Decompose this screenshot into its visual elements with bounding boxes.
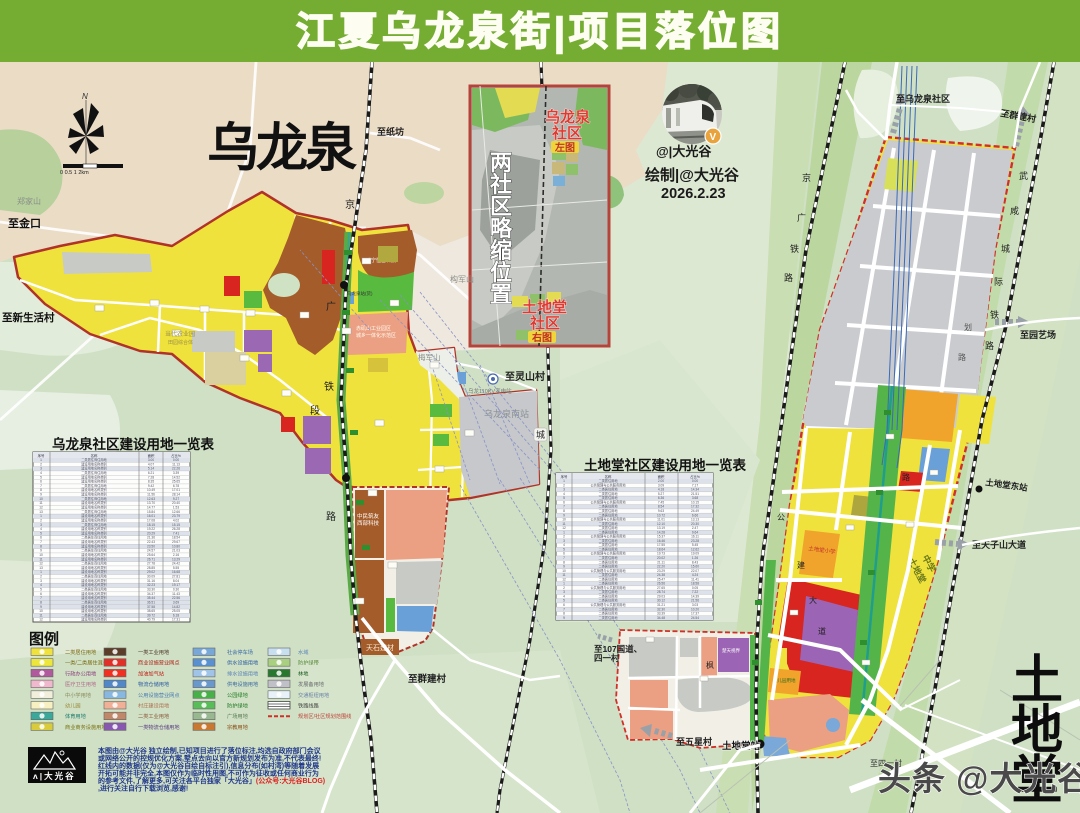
svg-text:建设用地名称类别: 建设用地名称类别 bbox=[81, 543, 107, 548]
svg-text:建设用地名称类别: 建设用地名称类别 bbox=[81, 604, 107, 609]
svg-text:京: 京 bbox=[345, 198, 355, 211]
svg-text:二类居住用地: 二类居住用地 bbox=[598, 504, 618, 509]
svg-text:头条 @大光谷: 头条 @大光谷 bbox=[878, 760, 1080, 797]
svg-text:二类居住用地: 二类居住用地 bbox=[598, 538, 618, 543]
svg-text:建设用地名称类别: 建设用地名称类别 bbox=[81, 539, 107, 544]
svg-text:防护绿地: 防护绿地 bbox=[227, 702, 248, 710]
svg-text:二类居住商住用地: 二类居住商住用地 bbox=[81, 535, 107, 540]
svg-text:公共管理与公共服务用地: 公共管理与公共服务用地 bbox=[590, 585, 626, 590]
svg-text:8: 8 bbox=[40, 544, 42, 548]
svg-text:绘制|@大光谷: 绘制|@大光谷 bbox=[645, 166, 740, 184]
svg-text:@|大光谷: @|大光谷 bbox=[656, 144, 712, 159]
svg-text:公共管理与公共服务用地: 公共管理与公共服务用地 bbox=[590, 517, 626, 522]
svg-text:公园绿地: 公园绿地 bbox=[227, 691, 248, 699]
svg-text:城: 城 bbox=[536, 430, 545, 440]
svg-text:公共管理与公共服务用地: 公共管理与公共服务用地 bbox=[590, 551, 626, 556]
svg-text:4.02: 4.02 bbox=[173, 518, 179, 522]
svg-text:路: 路 bbox=[958, 352, 966, 362]
svg-text:城乡一体化示范区: 城乡一体化示范区 bbox=[356, 332, 396, 339]
svg-text:建设用地名称类别: 建设用地名称类别 bbox=[81, 556, 107, 561]
svg-text:24.54: 24.54 bbox=[691, 616, 699, 620]
svg-text:公共管理与公共服务用地: 公共管理与公共服务用地 bbox=[590, 534, 626, 539]
svg-text:林地: 林地 bbox=[298, 669, 308, 677]
svg-text:公共管理与公共服务用地: 公共管理与公共服务用地 bbox=[590, 568, 626, 573]
svg-text:排水设施用地: 排水设施用地 bbox=[227, 669, 258, 677]
svg-text:二类居住商住用地: 二类居住商住用地 bbox=[81, 522, 107, 527]
svg-text:水域: 水域 bbox=[298, 648, 308, 656]
svg-text:一类物流仓储用地: 一类物流仓储用地 bbox=[138, 723, 180, 731]
svg-text:咸: 咸 bbox=[1010, 205, 1019, 216]
svg-text:2: 2 bbox=[40, 462, 42, 466]
svg-text:二类居住用地: 二类居住用地 bbox=[598, 598, 618, 603]
svg-text:建设用地名称类别: 建设用地名称类别 bbox=[81, 617, 107, 622]
svg-text:本图由@大光谷 独立绘制,已知项目进行了落位标注,均选自政府: 本图由@大光谷 独立绘制,已知项目进行了落位标注,均选自政府部门会议 bbox=[97, 746, 322, 755]
svg-text:路: 路 bbox=[985, 340, 994, 351]
svg-text:交通枢纽用地: 交通枢纽用地 bbox=[298, 691, 329, 699]
svg-text:乌龙泉: 乌龙泉 bbox=[207, 120, 357, 178]
svg-text:序号: 序号 bbox=[38, 453, 45, 458]
svg-text:至灵山村: 至灵山村 bbox=[505, 370, 545, 383]
svg-text:中小学用地: 中小学用地 bbox=[65, 691, 91, 699]
svg-text:二类居住用地: 二类居住用地 bbox=[598, 564, 618, 569]
svg-text:体育用地: 体育用地 bbox=[65, 712, 86, 720]
svg-text:二类居住商住用地: 二类居住商住用地 bbox=[81, 483, 107, 488]
svg-text:建设用地名称类别: 建设用地名称类别 bbox=[81, 565, 107, 570]
svg-text:二类居住商住用地: 二类居住商住用地 bbox=[81, 612, 107, 617]
svg-text:二类居住用地: 二类居住用地 bbox=[598, 491, 618, 496]
svg-text:供电设施用地: 供电设施用地 bbox=[227, 680, 258, 688]
svg-text:建设用地名称类别: 建设用地名称类别 bbox=[81, 530, 107, 535]
svg-text:建设用地名称类别: 建设用地名称类别 bbox=[81, 500, 107, 505]
svg-text:建设用地名称类别: 建设用地名称类别 bbox=[81, 608, 107, 613]
svg-text:社区: 社区 bbox=[529, 314, 560, 332]
svg-text:二类居住商住用地: 二类居住商住用地 bbox=[81, 574, 107, 579]
svg-text:3.69: 3.69 bbox=[173, 600, 179, 604]
svg-text:一类工业用地: 一类工业用地 bbox=[138, 648, 169, 656]
svg-text:建设用地名称类别: 建设用地名称类别 bbox=[81, 526, 107, 531]
svg-text:二类居住用地: 二类居住用地 bbox=[598, 508, 618, 513]
svg-text:建设用地名称类别: 建设用地名称类别 bbox=[81, 517, 107, 522]
svg-text:路: 路 bbox=[326, 510, 336, 523]
svg-text:建设用地名称类别: 建设用地名称类别 bbox=[81, 487, 107, 492]
svg-text:防护绿带: 防护绿带 bbox=[298, 659, 319, 667]
svg-text:商业商务设施用地: 商业商务设施用地 bbox=[65, 723, 107, 731]
svg-text:名称: 名称 bbox=[91, 453, 98, 458]
svg-text:或网络公开的控规优化方案,墅点去向以官方新规划发布为准,不代: 或网络公开的控规优化方案,墅点去向以官方新规划发布为准,不代表最终! bbox=[98, 754, 321, 763]
svg-text:28.14: 28.14 bbox=[172, 493, 180, 497]
svg-text:城: 城 bbox=[1001, 244, 1010, 254]
svg-text:大: 大 bbox=[809, 595, 817, 605]
svg-text:二类工业用地: 二类工业用地 bbox=[138, 712, 169, 720]
svg-text:商业设施营业网点: 商业设施营业网点 bbox=[138, 659, 180, 667]
svg-text:建设用地名称类别: 建设用地名称类别 bbox=[81, 578, 107, 583]
svg-text:土地堂社区建设用地一览表: 土地堂社区建设用地一览表 bbox=[584, 457, 746, 473]
svg-text:广: 广 bbox=[797, 212, 806, 223]
svg-text:12: 12 bbox=[39, 618, 43, 622]
svg-text:V: V bbox=[710, 132, 717, 143]
svg-text:乌龙110KV变电站: 乌龙110KV变电站 bbox=[468, 387, 512, 395]
svg-text:建设用地名称类别: 建设用地名称类别 bbox=[81, 582, 107, 587]
svg-text:序号: 序号 bbox=[561, 474, 568, 479]
svg-text:至园艺场: 至园艺场 bbox=[1020, 329, 1056, 340]
svg-text:图例: 图例 bbox=[29, 630, 59, 648]
svg-text:二类居住商住用地: 二类居住商住用地 bbox=[81, 561, 107, 566]
svg-text:广场用地: 广场用地 bbox=[227, 712, 248, 720]
svg-text:9: 9 bbox=[40, 493, 42, 497]
svg-text:17.31: 17.31 bbox=[172, 618, 180, 622]
svg-text:至金口: 至金口 bbox=[8, 216, 41, 230]
svg-text:枫: 枫 bbox=[706, 660, 714, 670]
svg-text:建设用地名称类别: 建设用地名称类别 bbox=[81, 474, 107, 479]
svg-text:占比%: 占比% bbox=[171, 453, 181, 458]
svg-text:2: 2 bbox=[40, 518, 42, 522]
svg-text:36.51: 36.51 bbox=[147, 600, 155, 604]
svg-text:右图: 右图 bbox=[531, 331, 552, 344]
svg-text:名称: 名称 bbox=[605, 474, 612, 479]
svg-text:社区: 社区 bbox=[551, 124, 582, 142]
svg-text:置: 置 bbox=[490, 282, 512, 307]
svg-text:构军山: 构军山 bbox=[450, 274, 474, 284]
svg-text:,进行关注自行下载浏览,感谢!: ,进行关注自行下载浏览,感谢! bbox=[98, 784, 188, 793]
svg-text:乌龙泉站(货): 乌龙泉站(货) bbox=[347, 290, 373, 297]
svg-text:铁路线路: 铁路线路 bbox=[298, 702, 320, 710]
svg-text:至五星村: 至五星村 bbox=[676, 736, 712, 747]
svg-text:际: 际 bbox=[994, 277, 1003, 287]
svg-text:0 0.5 1 2km: 0 0.5 1 2km bbox=[60, 170, 89, 176]
svg-text:道: 道 bbox=[818, 626, 826, 636]
svg-text:铁: 铁 bbox=[990, 309, 999, 320]
svg-text:面积: 面积 bbox=[148, 453, 155, 458]
svg-text:开拓可能并非完全,本图仅作为临时性用图,不可作为征收或任何商: 开拓可能并非完全,本图仅作为临时性用图,不可作为征收或任何商业行为 bbox=[98, 769, 319, 778]
svg-text:物流仓储用地: 物流仓储用地 bbox=[138, 680, 169, 688]
svg-text:铁: 铁 bbox=[790, 243, 799, 254]
svg-text:占比%: 占比% bbox=[690, 474, 700, 479]
svg-text:二类居住用地: 二类居住用地 bbox=[598, 555, 618, 560]
svg-text:段: 段 bbox=[310, 404, 320, 417]
svg-text:11.13: 11.13 bbox=[172, 462, 180, 466]
svg-text:乌龙泉社区建设用地一览表: 乌龙泉社区建设用地一览表 bbox=[52, 436, 214, 452]
svg-text:左图: 左图 bbox=[554, 141, 575, 154]
svg-text:公用设施营业网点: 公用设施营业网点 bbox=[138, 691, 180, 699]
svg-text:17.08: 17.08 bbox=[147, 518, 155, 522]
svg-text:二类居住用地: 二类居住用地 bbox=[598, 521, 618, 526]
svg-text:至乌龙泉社区: 至乌龙泉社区 bbox=[896, 93, 950, 104]
svg-text:4.07: 4.07 bbox=[148, 462, 154, 466]
svg-text:医疗卫生用地: 医疗卫生用地 bbox=[65, 680, 96, 688]
svg-text:江夏乌龙泉街|项目落位图: 江夏乌龙泉街|项目落位图 bbox=[296, 11, 784, 54]
svg-text:京: 京 bbox=[802, 172, 811, 183]
svg-text:建设用地名称类别: 建设用地名称类别 bbox=[81, 513, 107, 518]
svg-text:8: 8 bbox=[40, 600, 42, 604]
svg-text:建设用地名称类别: 建设用地名称类别 bbox=[81, 591, 107, 596]
svg-text:公共管理与公共服务用地: 公共管理与公共服务用地 bbox=[590, 482, 626, 487]
svg-text:路: 路 bbox=[784, 272, 793, 283]
svg-text:社会停车场: 社会停车场 bbox=[227, 648, 253, 656]
svg-text:红线内的数据(仅为@大光谷自绘自标注引),信息分布(如村湾): 红线内的数据(仅为@大光谷自绘自标注引),信息分布(如村湾)等随着发展 bbox=[98, 761, 320, 770]
svg-text:公共管理与公共服务用地: 公共管理与公共服务用地 bbox=[590, 602, 626, 607]
svg-text:N: N bbox=[82, 92, 88, 101]
svg-text:34.48: 34.48 bbox=[657, 616, 665, 620]
svg-text:四一村: 四一村 bbox=[594, 653, 620, 663]
svg-text:乌龙泉: 乌龙泉 bbox=[545, 108, 591, 126]
svg-text:建设用地名称类别: 建设用地名称类别 bbox=[81, 595, 107, 600]
svg-text:行政办公用地: 行政办公用地 bbox=[65, 669, 96, 677]
svg-text:二类居住商住用地: 二类居住商住用地 bbox=[81, 470, 107, 475]
svg-text:西部科技: 西部科技 bbox=[357, 519, 380, 527]
svg-text:至新生活村: 至新生活村 bbox=[2, 311, 55, 324]
svg-text:建设用地名称类别: 建设用地名称类别 bbox=[81, 569, 107, 574]
svg-text:30.09: 30.09 bbox=[147, 575, 155, 579]
svg-text:的参考文件,了解更多,可关注各平台独家「大光谷」(公众号:大: 的参考文件,了解更多,可关注各平台独家「大光谷」(公众号:大光谷BLOG) bbox=[98, 776, 325, 785]
svg-text:建设用地名称类别: 建设用地名称类别 bbox=[81, 479, 107, 484]
svg-text:加油加气站: 加油加气站 bbox=[138, 669, 164, 677]
svg-text:二类居住用地: 二类居住用地 bbox=[65, 648, 96, 656]
svg-text:至群建村: 至群建村 bbox=[408, 673, 447, 685]
svg-text:土地堂: 土地堂 bbox=[522, 298, 567, 316]
svg-text:二类居住用地: 二类居住用地 bbox=[598, 546, 618, 551]
svg-text:当代农业园: 当代农业园 bbox=[165, 330, 195, 338]
svg-text:二类居住商住用地: 二类居住商住用地 bbox=[81, 509, 107, 514]
svg-text:2: 2 bbox=[40, 575, 42, 579]
svg-text:至纸坊: 至纸坊 bbox=[377, 126, 404, 137]
svg-text:公: 公 bbox=[777, 513, 785, 522]
svg-text:二类居住用地: 二类居住用地 bbox=[598, 611, 618, 616]
svg-text:广: 广 bbox=[326, 301, 336, 313]
svg-text:二类居住商住用地: 二类居住商住用地 bbox=[81, 587, 107, 592]
svg-text:赤矶山工业园区: 赤矶山工业园区 bbox=[356, 325, 391, 332]
svg-text:建: 建 bbox=[797, 560, 805, 570]
svg-text:面积: 面积 bbox=[658, 474, 665, 479]
svg-text:供水设施用地: 供水设施用地 bbox=[227, 659, 258, 667]
svg-text:二类居住用地: 二类居住用地 bbox=[598, 487, 618, 492]
svg-text:划: 划 bbox=[964, 322, 972, 332]
svg-text:郑家山: 郑家山 bbox=[17, 196, 41, 206]
svg-text:ʌ|大光谷: ʌ|大光谷 bbox=[33, 771, 76, 781]
svg-text:幼儿园: 幼儿园 bbox=[65, 702, 81, 710]
svg-text:二类居住用地: 二类居住用地 bbox=[598, 529, 618, 534]
svg-text:发展备用地: 发展备用地 bbox=[298, 680, 324, 688]
svg-text:9: 9 bbox=[563, 616, 565, 620]
svg-text:中民筑友: 中民筑友 bbox=[357, 512, 380, 520]
svg-text:10.80: 10.80 bbox=[172, 544, 180, 548]
svg-text:建设用地名称类别: 建设用地名称类别 bbox=[81, 505, 107, 510]
svg-text:建设用地名称类别: 建设用地名称类别 bbox=[81, 552, 107, 557]
svg-text:2026.2.23: 2026.2.23 bbox=[661, 186, 726, 202]
svg-text:铁: 铁 bbox=[324, 380, 334, 393]
svg-text:建设用地名称类别: 建设用地名称类别 bbox=[81, 466, 107, 471]
svg-text:40.79: 40.79 bbox=[147, 618, 155, 622]
svg-text:楚天视界: 楚天视界 bbox=[722, 647, 740, 654]
svg-text:建设用地名称类别: 建设用地名称类别 bbox=[81, 492, 107, 497]
svg-text:二类居住商住用地: 二类居住商住用地 bbox=[81, 496, 107, 501]
svg-text:11.56: 11.56 bbox=[147, 493, 155, 497]
svg-text:二类居住用地: 二类居住用地 bbox=[598, 615, 618, 620]
svg-text:规划区/社区规划范围线: 规划区/社区规划范围线 bbox=[298, 712, 351, 720]
svg-text:二类居住商住用地: 二类居住商住用地 bbox=[81, 548, 107, 553]
svg-text:田园综合体: 田园综合体 bbox=[168, 339, 193, 346]
svg-text:建设用地名称类别: 建设用地名称类别 bbox=[81, 461, 107, 466]
svg-text:二类居住商住用地: 二类居住商住用地 bbox=[81, 599, 107, 604]
svg-text:27.81: 27.81 bbox=[172, 575, 180, 579]
svg-text:23.50: 23.50 bbox=[147, 544, 155, 548]
svg-text:武: 武 bbox=[1019, 170, 1028, 181]
svg-text:二类居住用地: 二类居住用地 bbox=[598, 576, 618, 581]
svg-text:村庄建设用地: 村庄建设用地 bbox=[138, 702, 169, 710]
svg-text:梅军山: 梅军山 bbox=[418, 352, 441, 362]
svg-text:二类居住用地: 二类居住用地 bbox=[598, 593, 618, 598]
svg-text:路: 路 bbox=[902, 472, 910, 482]
svg-text:公共管理与公共服务用地: 公共管理与公共服务用地 bbox=[590, 499, 626, 504]
svg-text:宗教用地: 宗教用地 bbox=[227, 723, 248, 731]
svg-text:二类居住用地: 二类居住用地 bbox=[598, 581, 618, 586]
